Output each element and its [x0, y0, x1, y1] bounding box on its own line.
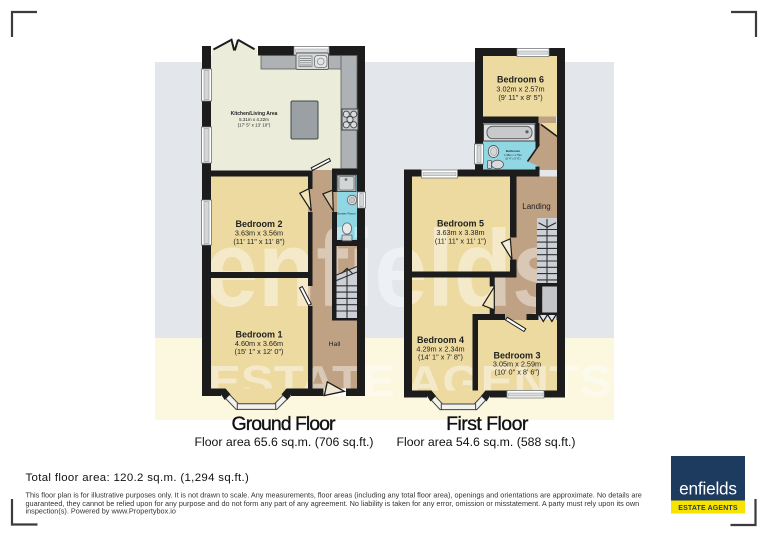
svg-text:Bathroom: Bathroom [506, 149, 520, 153]
svg-text:Bedroom 4: Bedroom 4 [417, 335, 464, 345]
svg-text:Bedroom 1: Bedroom 1 [235, 330, 282, 340]
svg-text:5.31m x 4.22m: 5.31m x 4.22m [239, 117, 269, 122]
svg-text:Ground Floor: Ground Floor [232, 413, 336, 435]
svg-text:Bedroom 2: Bedroom 2 [235, 219, 282, 229]
svg-text:First Floor: First Floor [446, 413, 529, 435]
svg-text:1.98m x 1.75m: 1.98m x 1.75m [504, 153, 523, 157]
svg-text:Landing: Landing [522, 202, 550, 211]
svg-text:Bedroom 6: Bedroom 6 [497, 75, 544, 85]
svg-text:(6' 4" x 5' 9"): (6' 4" x 5' 9") [505, 157, 520, 161]
svg-text:Total floor area: 120.2 sq.m.: Total floor area: 120.2 sq.m. (1,294 sq.… [26, 472, 250, 484]
svg-text:Hall: Hall [329, 341, 341, 348]
svg-text:(11' 11" x 11' 1"): (11' 11" x 11' 1") [435, 237, 486, 246]
svg-text:(14' 1" x 7' 8"): (14' 1" x 7' 8") [418, 353, 463, 362]
svg-text:Shower Room: Shower Room [336, 212, 356, 216]
svg-text:inspection(s). Powered by www.: inspection(s). Powered by www.Propertybo… [26, 507, 176, 516]
svg-text:(10' 0" x 8' 6"): (10' 0" x 8' 6") [495, 368, 540, 377]
svg-text:(11' 11" x 11' 8"): (11' 11" x 11' 8") [233, 237, 284, 246]
svg-text:enfields: enfields [679, 479, 737, 499]
svg-text:Floor area 65.6 sq.m. (706 sq.: Floor area 65.6 sq.m. (706 sq.ft.) [194, 435, 373, 449]
svg-text:ESTATE AGENTS: ESTATE AGENTS [678, 505, 738, 512]
svg-text:(15' 1" x 12' 0"): (15' 1" x 12' 0") [235, 347, 284, 356]
svg-text:Bedroom 5: Bedroom 5 [437, 219, 484, 229]
svg-text:(9' 11" x 8' 5"): (9' 11" x 8' 5") [498, 93, 542, 102]
svg-text:Floor area 54.6 sq.m. (588 sq.: Floor area 54.6 sq.m. (588 sq.ft.) [396, 435, 575, 449]
svg-text:(17' 5" x 13' 10"): (17' 5" x 13' 10") [238, 122, 271, 127]
